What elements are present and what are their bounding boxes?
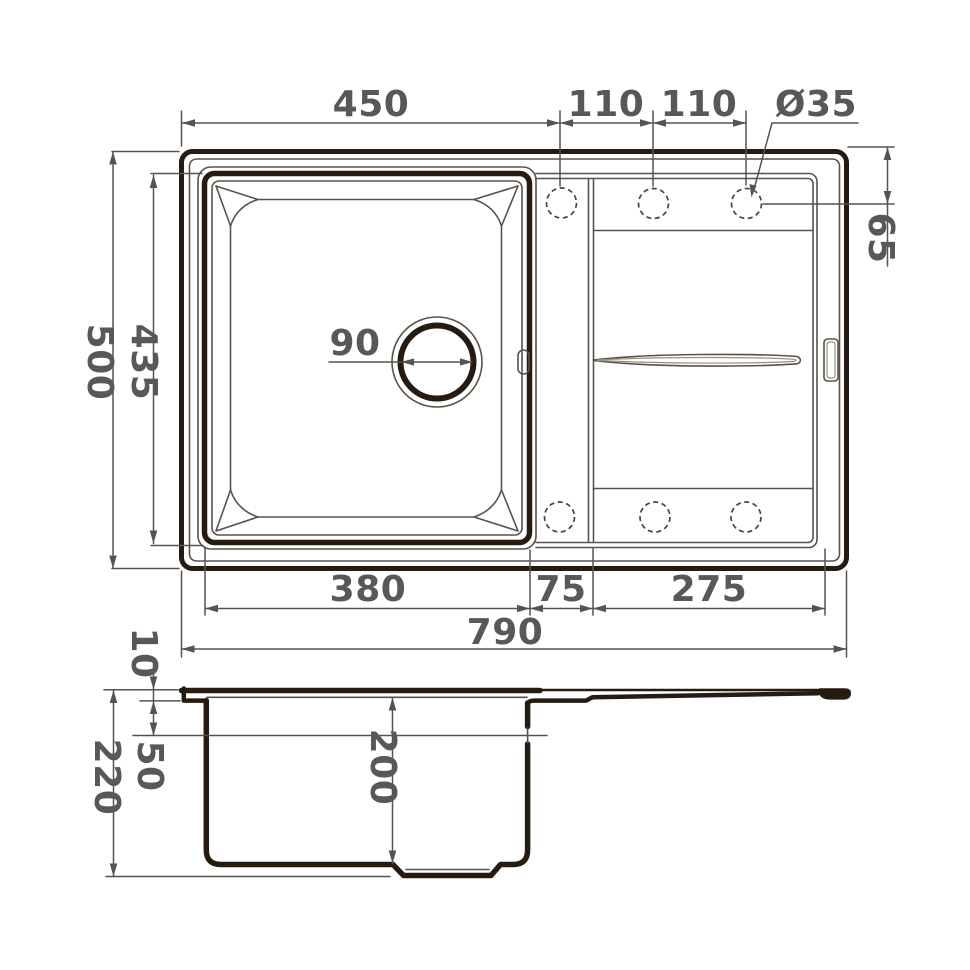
- sink-inner-edge: [190, 159, 840, 561]
- dim-label-200: 200: [362, 729, 403, 806]
- dim-75: 75: [530, 548, 593, 615]
- dim-label-d35: Ø35: [775, 84, 857, 125]
- dim-label-790: 790: [467, 612, 544, 653]
- dim-435: 435: [123, 174, 203, 546]
- dim-10: 10: [104, 627, 180, 735]
- dim-label-10: 10: [123, 627, 164, 678]
- sink-outer-edge: [182, 152, 847, 569]
- dim-label-450: 450: [333, 84, 410, 125]
- dim-label-90: 90: [329, 323, 380, 364]
- dim-hole-diameter: Ø35: [750, 84, 859, 198]
- dim-110-first: 110: [560, 84, 653, 186]
- dim-label-220: 220: [86, 739, 127, 816]
- dim-label-75: 75: [535, 569, 586, 610]
- drainboard-top-view: [536, 174, 838, 548]
- dim-275: 275: [593, 549, 825, 615]
- dim-65: 65: [763, 147, 901, 266]
- dim-110-second: 110: [653, 84, 746, 185]
- dim-label-110-2: 110: [661, 84, 738, 125]
- dim-label-65: 65: [860, 212, 901, 263]
- top-view: [182, 152, 847, 569]
- tap-holes: [545, 188, 762, 532]
- dim-200: 200: [362, 698, 403, 864]
- rim-slot: [824, 339, 838, 381]
- dim-label-50: 50: [129, 740, 170, 791]
- dim-450: 450: [182, 84, 561, 186]
- dim-label-435: 435: [123, 324, 164, 401]
- technical-drawing-page: 450 110 110 Ø35 65: [0, 0, 970, 970]
- dim-label-500: 500: [79, 324, 120, 401]
- rim-end-cap: [819, 688, 852, 699]
- section-view: [133, 688, 851, 875]
- dim-380: 380: [205, 547, 530, 615]
- dim-label-275: 275: [671, 569, 748, 610]
- drain-groove: [594, 354, 801, 366]
- dim-label-110-1: 110: [568, 84, 645, 125]
- dim-50: 50: [129, 723, 170, 792]
- dim-label-380: 380: [330, 569, 407, 610]
- drainboard-section: [528, 693, 818, 703]
- technical-drawing-canvas: 450 110 110 Ø35 65: [0, 0, 970, 970]
